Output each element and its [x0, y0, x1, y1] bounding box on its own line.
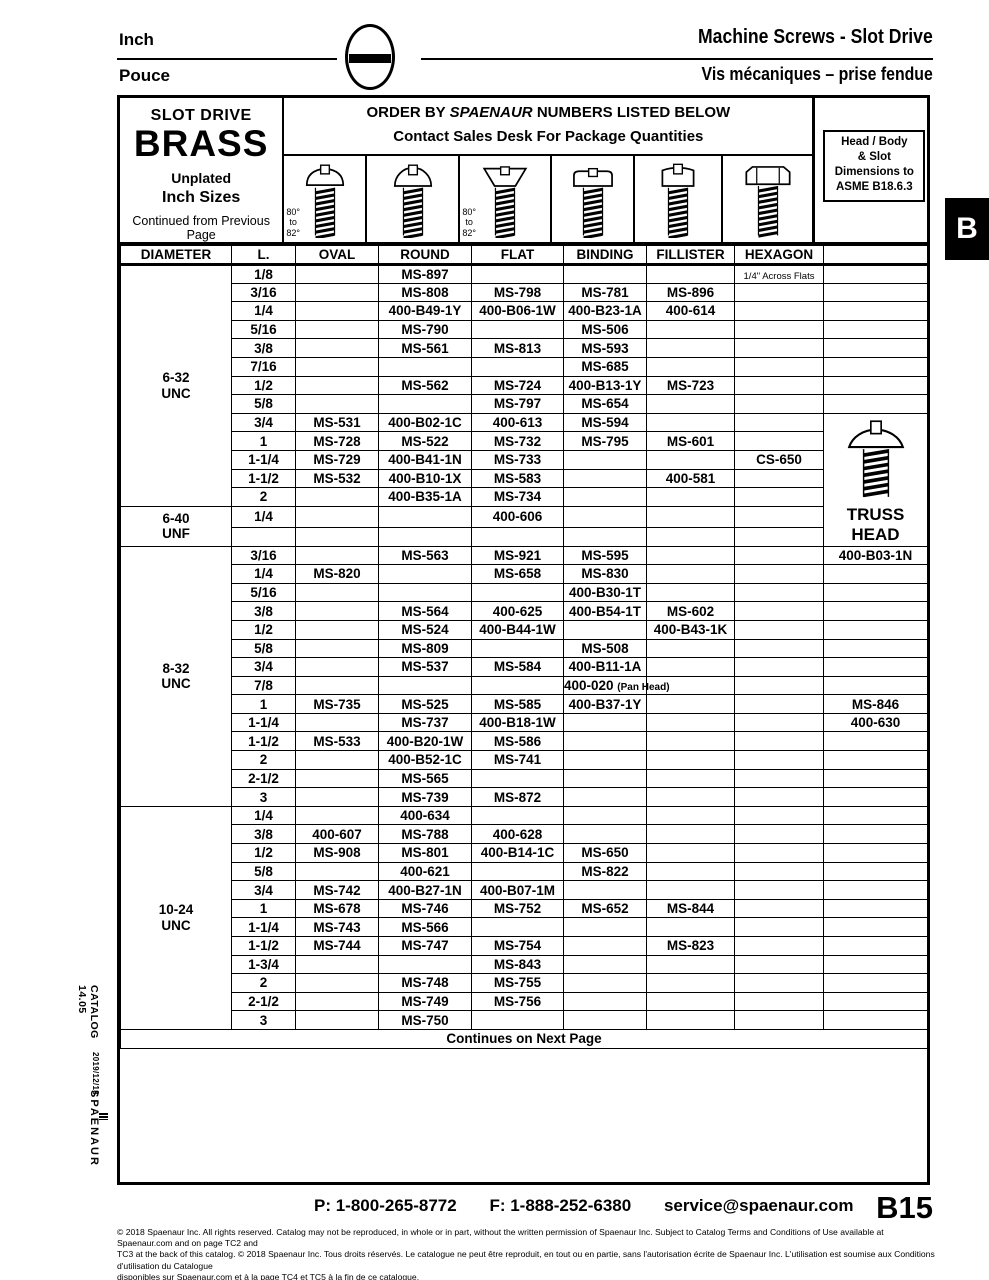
part-number-cell-binding [564, 265, 647, 284]
part-number-cell-round: MS-749 [379, 992, 472, 1011]
part-number-cell-fillister [647, 357, 735, 376]
asme-header-cell: Head / Body & Slot Dimensions to ASME B1… [812, 98, 927, 242]
part-number-cell-fillister: MS-896 [647, 283, 735, 302]
diameter-cell: 6-32UNC [121, 265, 232, 507]
part-number-cell-hexagon [735, 676, 824, 695]
part-number-cell-oval [296, 751, 379, 770]
part-number-cell-hexagon [735, 974, 824, 993]
part-number-cell-flat: MS-658 [472, 565, 564, 584]
page-header: Inch Pouce Machine Screws - Slot Drive V… [117, 22, 933, 94]
part-number-cell-round: MS-808 [379, 283, 472, 302]
part-number-cell-truss [824, 806, 928, 825]
part-number-cell-oval [296, 357, 379, 376]
part-number-cell-truss [824, 676, 928, 695]
part-number-cell-hexagon [735, 546, 824, 565]
part-number-cell-flat [472, 583, 564, 602]
part-number-cell-truss [824, 376, 928, 395]
part-number-cell-fillister [647, 339, 735, 358]
part-number-cell-hexagon [735, 695, 824, 714]
part-number-cell-binding [564, 769, 647, 788]
asme-note: Head / Body & Slot Dimensions to ASME B1… [823, 130, 925, 202]
part-number-cell-flat [472, 265, 564, 284]
part-number-cell-truss: 400-B03-1N [824, 546, 928, 565]
part-number-cell-binding [564, 506, 647, 527]
part-number-cell-oval: MS-735 [296, 695, 379, 714]
part-number-cell-fillister: MS-601 [647, 432, 735, 451]
part-number-cell-round: 400-B52-1C [379, 751, 472, 770]
length-cell: 1-1/4 [232, 450, 296, 469]
table-row: 3/8MS-564400-625400-B54-1TMS-602 [121, 602, 928, 621]
part-number-cell-fillister: MS-723 [647, 376, 735, 395]
part-number-cell-truss [824, 769, 928, 788]
catalog-version-vertical: CATALOG 14.05 2019/12/18 [76, 985, 100, 1095]
part-number-cell-fillister [647, 658, 735, 677]
part-number-cell-flat: MS-741 [472, 751, 564, 770]
part-number-cell-flat: MS-798 [472, 283, 564, 302]
part-number-cell-fillister [647, 751, 735, 770]
part-number-cell-oval: MS-908 [296, 844, 379, 863]
length-cell: 1-1/2 [232, 732, 296, 751]
part-number-cell-oval [296, 376, 379, 395]
part-number-cell-truss [824, 862, 928, 881]
column-header-flat: FLAT [472, 246, 564, 265]
part-number-cell-oval: MS-532 [296, 469, 379, 488]
part-number-cell-oval: MS-820 [296, 565, 379, 584]
table-row: 7/8400-020 (Pan Head) [121, 676, 928, 695]
table-row: 1/2MS-562MS-724400-B13-1YMS-723 [121, 376, 928, 395]
table-row: 2400-B52-1CMS-741 [121, 751, 928, 770]
part-number-cell-truss [824, 602, 928, 621]
length-cell: 3/4 [232, 881, 296, 900]
part-number-cell-binding [564, 450, 647, 469]
part-number-cell-round: MS-790 [379, 320, 472, 339]
table-row: 1-1/2MS-533400-B20-1WMS-586 [121, 732, 928, 751]
part-number-cell-flat: 400-B14-1C [472, 844, 564, 863]
part-number-cell-round: MS-565 [379, 769, 472, 788]
part-number-cell-binding: MS-822 [564, 862, 647, 881]
table-row: 3/8MS-561MS-813MS-593 [121, 339, 928, 358]
oval-head-screw-icon: 80° to 82° [284, 156, 367, 242]
part-number-cell-binding: MS-594 [564, 413, 647, 432]
length-cell: 5/8 [232, 395, 296, 414]
part-number-cell-round: MS-525 [379, 695, 472, 714]
length-cell: 1 [232, 695, 296, 714]
part-number-cell-flat [472, 639, 564, 658]
part-number-cell-fillister: 400-B43-1K [647, 620, 735, 639]
part-number-cell-flat [472, 527, 564, 546]
part-number-cell-flat [472, 320, 564, 339]
table-header-block: SLOT DRIVE BRASS Unplated Inch Sizes Con… [120, 98, 927, 245]
diameter-cell: 8-32UNC [121, 546, 232, 806]
part-number-cell-hexagon [735, 527, 824, 546]
part-number-cell-oval: MS-729 [296, 450, 379, 469]
table-row: 2-1/2MS-749MS-756 [121, 992, 928, 1011]
part-number-cell-truss: MS-846 [824, 695, 928, 714]
part-number-cell-round: MS-748 [379, 974, 472, 993]
part-number-cell-binding [564, 469, 647, 488]
length-cell: 1/8 [232, 265, 296, 284]
part-number-cell-oval [296, 302, 379, 321]
part-number-cell-fillister: MS-823 [647, 937, 735, 956]
table-row: 1/4400-B49-1Y400-B06-1W400-B23-1A400-614 [121, 302, 928, 321]
part-number-cell-binding [564, 806, 647, 825]
part-number-cell-flat: MS-585 [472, 695, 564, 714]
column-header-hexagon: HEXAGON [735, 246, 824, 265]
length-cell: 7/16 [232, 357, 296, 376]
part-number-cell-flat: 400-B06-1W [472, 302, 564, 321]
binding-head-screw-icon [552, 156, 635, 242]
part-number-cell-flat: 400-B18-1W [472, 713, 564, 732]
length-cell: 3/8 [232, 339, 296, 358]
part-number-cell-hexagon [735, 432, 824, 451]
part-number-cell-fillister [647, 918, 735, 937]
length-cell: 1-3/4 [232, 955, 296, 974]
part-number-cell-flat: MS-734 [472, 488, 564, 507]
part-number-cell-flat: 400-B07-1M [472, 881, 564, 900]
part-number-cell-flat: MS-921 [472, 546, 564, 565]
part-number-cell-round: 400-621 [379, 862, 472, 881]
table-row: 1-1/4MS-729400-B41-1NMS-733CS-650 [121, 450, 928, 469]
length-cell: 5/16 [232, 320, 296, 339]
part-number-cell-round: MS-750 [379, 1011, 472, 1030]
part-number-cell-hexagon [735, 320, 824, 339]
round-head-screw-icon [367, 156, 460, 242]
catalog-date: 2019/12/18 [76, 1052, 100, 1095]
part-number-cell-oval: 400-607 [296, 825, 379, 844]
part-number-cell-hexagon [735, 992, 824, 1011]
table-row: 3MS-739MS-872 [121, 788, 928, 807]
part-number-cell-binding: MS-830 [564, 565, 647, 584]
part-number-cell-fillister [647, 639, 735, 658]
part-number-cell-truss [824, 788, 928, 807]
column-header-binding: BINDING [564, 246, 647, 265]
cell-note: (Pan Head) [617, 682, 669, 693]
part-number-cell-flat: 400-625 [472, 602, 564, 621]
part-number-cell-truss: 400-630 [824, 713, 928, 732]
length-cell: 1/4 [232, 806, 296, 825]
table-row: 2MS-748MS-755 [121, 974, 928, 993]
part-number-cell-binding [564, 620, 647, 639]
order-instruction: ORDER BY SPAENAUR NUMBERS LISTED BELOW [284, 104, 812, 121]
part-number-cell-hexagon: CS-650 [735, 450, 824, 469]
part-number-cell-oval [296, 1011, 379, 1030]
part-number-cell-oval [296, 320, 379, 339]
part-number-cell-oval [296, 488, 379, 507]
part-number-cell-binding [564, 974, 647, 993]
part-number-cell-oval [296, 769, 379, 788]
part-number-cell-hexagon: 1/4" Across Flats [735, 265, 824, 284]
part-number-cell-flat: MS-755 [472, 974, 564, 993]
part-number-cell-binding [564, 881, 647, 900]
part-number-cell-truss [824, 283, 928, 302]
part-number-cell-fillister [647, 546, 735, 565]
table-row: 6-32UNC1/8MS-8971/4" Across Flats [121, 265, 928, 284]
length-cell: 3/16 [232, 546, 296, 565]
part-number-cell-binding [564, 732, 647, 751]
part-number-cell-flat: MS-584 [472, 658, 564, 677]
table-row: 1-1/2MS-744MS-747MS-754MS-823 [121, 937, 928, 956]
length-cell: 1/2 [232, 620, 296, 639]
part-number-cell-round: 400-B02-1C [379, 413, 472, 432]
diameter-cell: 10-24UNC [121, 806, 232, 1029]
length-cell: 1-1/2 [232, 937, 296, 956]
part-number-cell-truss [824, 1011, 928, 1030]
head-angle-note: 80° to 82° [286, 207, 300, 238]
part-number-cell-fillister: 400-581 [647, 469, 735, 488]
part-number-cell-truss [824, 751, 928, 770]
part-number-cell-truss [824, 992, 928, 1011]
part-number-cell-round: MS-897 [379, 265, 472, 284]
table-row: 3MS-750 [121, 1011, 928, 1030]
part-number-cell-truss [824, 918, 928, 937]
part-number-cell-truss [824, 565, 928, 584]
part-number-cell-fillister [647, 527, 735, 546]
catalog-table: SLOT DRIVE BRASS Unplated Inch Sizes Con… [117, 95, 930, 1185]
part-number-cell-oval [296, 676, 379, 695]
part-number-cell-oval: MS-678 [296, 899, 379, 918]
part-number-cell-round: MS-746 [379, 899, 472, 918]
table-row: 1-1/4MS-743MS-566 [121, 918, 928, 937]
table-row: 5/8MS-797MS-654 [121, 395, 928, 414]
table-row [121, 527, 928, 546]
table-row: 3/4MS-531400-B02-1C400-613MS-594TRUSSHEA… [121, 413, 928, 432]
part-number-cell-truss [824, 339, 928, 358]
part-number-cell-truss [824, 937, 928, 956]
part-number-cell-round: MS-563 [379, 546, 472, 565]
part-number-cell-binding: MS-593 [564, 339, 647, 358]
part-number-cell-hexagon [735, 565, 824, 584]
table-row: 1-3/4MS-843 [121, 955, 928, 974]
table-row: 6-40UNF1/4400-606 [121, 506, 928, 527]
part-number-cell-flat [472, 769, 564, 788]
fax-number: F: 1-888-252-6380 [489, 1196, 631, 1215]
part-number-cell-flat: MS-733 [472, 450, 564, 469]
part-number-cell-fillister [647, 862, 735, 881]
part-number-cell-fillister [647, 788, 735, 807]
part-number-table: DIAMETERL.OVALROUNDFLATBINDINGFILLISTERH… [120, 245, 928, 1049]
part-number-cell-truss [824, 639, 928, 658]
part-number-cell-fillister [647, 713, 735, 732]
part-number-cell-hexagon [735, 376, 824, 395]
part-number-cell-flat: MS-754 [472, 937, 564, 956]
part-number-cell-oval [296, 639, 379, 658]
finish-label: Unplated [120, 170, 282, 186]
part-number-cell-oval [296, 862, 379, 881]
part-number-cell-round: MS-747 [379, 937, 472, 956]
part-number-cell-fillister [647, 1011, 735, 1030]
part-number-cell-round: MS-566 [379, 918, 472, 937]
part-number-cell-hexagon [735, 658, 824, 677]
part-number-cell-round: MS-562 [379, 376, 472, 395]
part-number-cell-binding: MS-781 [564, 283, 647, 302]
part-number-cell-oval [296, 527, 379, 546]
length-cell: 3/16 [232, 283, 296, 302]
part-number-cell-oval [296, 955, 379, 974]
part-number-cell-truss [824, 881, 928, 900]
part-number-cell-fillister [647, 395, 735, 414]
part-number-cell-hexagon [735, 639, 824, 658]
part-number-cell-hexagon [735, 806, 824, 825]
part-number-cell-binding [564, 488, 647, 507]
part-number-cell-truss [824, 302, 928, 321]
part-number-cell-flat: MS-724 [472, 376, 564, 395]
part-number-cell-flat: MS-756 [472, 992, 564, 1011]
length-cell: 1 [232, 432, 296, 451]
brand-vertical: SPAENAUR [88, 1090, 100, 1185]
part-number-cell-round: MS-739 [379, 788, 472, 807]
length-cell: 1/2 [232, 844, 296, 863]
part-number-cell-hexagon [735, 713, 824, 732]
table-row: 1/4MS-820MS-658MS-830 [121, 565, 928, 584]
length-cell: 2 [232, 974, 296, 993]
part-number-cell-round: MS-524 [379, 620, 472, 639]
length-cell: 3/4 [232, 413, 296, 432]
part-number-cell-round: 400-B27-1N [379, 881, 472, 900]
part-number-cell-hexagon [735, 302, 824, 321]
length-cell: 5/16 [232, 583, 296, 602]
table-row: 1-1/2MS-532400-B10-1XMS-583400-581 [121, 469, 928, 488]
length-cell: 1/2 [232, 376, 296, 395]
part-number-cell-truss [824, 974, 928, 993]
part-number-cell-binding [564, 713, 647, 732]
part-number-cell-fillister [647, 732, 735, 751]
part-number-cell-fillister [647, 806, 735, 825]
part-number-cell-truss [824, 825, 928, 844]
part-number-cell-flat: MS-813 [472, 339, 564, 358]
table-row: 1-1/4MS-737400-B18-1W400-630 [121, 713, 928, 732]
part-number-cell-binding: 400-B30-1T [564, 583, 647, 602]
continues-note: Continues on Next Page [121, 1029, 928, 1048]
part-number-cell-hexagon [735, 469, 824, 488]
part-number-cell-fillister [647, 881, 735, 900]
part-number-cell-round: 400-634 [379, 806, 472, 825]
part-number-cell-hexagon [735, 918, 824, 937]
part-number-cell-hexagon [735, 413, 824, 432]
part-number-cell-oval [296, 713, 379, 732]
part-number-cell-oval [296, 806, 379, 825]
length-cell: 2-1/2 [232, 769, 296, 788]
part-number-cell-fillister [647, 844, 735, 863]
column-header-round: ROUND [379, 246, 472, 265]
part-number-cell-binding [564, 937, 647, 956]
part-number-cell-hexagon [735, 283, 824, 302]
table-row: 2-1/2MS-565 [121, 769, 928, 788]
table-row: 1MS-735MS-525MS-585400-B37-1YMS-846 [121, 695, 928, 714]
part-number-cell-fillister: MS-602 [647, 602, 735, 621]
part-number-cell-fillister [647, 695, 735, 714]
part-number-cell-hexagon [735, 899, 824, 918]
part-number-cell-truss [824, 658, 928, 677]
unit-label-fr: Pouce [119, 66, 170, 86]
material-label: BRASS [120, 125, 282, 162]
part-number-cell-flat: MS-586 [472, 732, 564, 751]
length-cell: 1/4 [232, 506, 296, 527]
part-number-cell-round: MS-809 [379, 639, 472, 658]
length-cell: 7/8 [232, 676, 296, 695]
column-header-row: DIAMETERL.OVALROUNDFLATBINDINGFILLISTERH… [121, 246, 928, 265]
part-number-cell-binding: 400-B13-1Y [564, 376, 647, 395]
part-number-cell-hexagon [735, 769, 824, 788]
part-number-cell-oval [296, 583, 379, 602]
part-number-cell-fillister: MS-844 [647, 899, 735, 918]
spaenaur-logo-icon [99, 1113, 108, 1120]
part-number-cell-flat: MS-583 [472, 469, 564, 488]
email-address: service@spaenaur.com [664, 1196, 854, 1215]
length-cell: 1 [232, 899, 296, 918]
part-number-cell-fillister [647, 265, 735, 284]
part-number-cell-oval: MS-533 [296, 732, 379, 751]
part-number-cell-flat [472, 676, 564, 695]
header-rule-right [421, 58, 933, 60]
part-number-cell-round [379, 676, 472, 695]
table-row: 2400-B35-1AMS-734 [121, 488, 928, 507]
part-number-cell-oval [296, 506, 379, 527]
table-bottom-row: Continues on Next Page [121, 1029, 928, 1048]
part-number-cell-truss [824, 395, 928, 414]
part-number-cell-fillister [647, 413, 735, 432]
part-number-cell-binding: MS-508 [564, 639, 647, 658]
length-cell: 3 [232, 788, 296, 807]
contact-instruction: Contact Sales Desk For Package Quantitie… [284, 128, 812, 145]
part-number-cell-flat: 400-606 [472, 506, 564, 527]
slot-drive-icon [345, 24, 395, 90]
part-number-cell-flat: MS-843 [472, 955, 564, 974]
part-number-cell-round: 400-B20-1W [379, 732, 472, 751]
column-header-diameter: DIAMETER [121, 246, 232, 265]
part-number-cell-oval: MS-742 [296, 881, 379, 900]
part-number-cell-flat: 400-613 [472, 413, 564, 432]
part-number-cell-oval [296, 546, 379, 565]
part-number-cell-hexagon [735, 788, 824, 807]
part-number-cell-binding [564, 751, 647, 770]
part-number-cell-binding: 400-B11-1A [564, 658, 647, 677]
length-cell: 3/8 [232, 602, 296, 621]
table-row: 1MS-678MS-746MS-752MS-652MS-844 [121, 899, 928, 918]
part-number-cell-truss [824, 955, 928, 974]
part-number-cell-binding: MS-506 [564, 320, 647, 339]
part-number-cell-truss [824, 265, 928, 284]
part-number-cell-truss [824, 844, 928, 863]
length-cell: 2 [232, 488, 296, 507]
catalog-version: CATALOG 14.05 [76, 985, 100, 1050]
truss-head-panel: TRUSSHEAD [824, 413, 928, 546]
part-number-cell-hexagon [735, 825, 824, 844]
part-number-cell-fillister: 400-614 [647, 302, 735, 321]
phone-number: P: 1-800-265-8772 [314, 1196, 457, 1215]
legal-text: © 2018 Spaenaur Inc. All rights reserved… [117, 1227, 937, 1280]
part-number-cell-fillister [647, 769, 735, 788]
contact-line: P: 1-800-265-8772 F: 1-888-252-6380 serv… [300, 1196, 860, 1216]
table-row: 1/2MS-524400-B44-1W400-B43-1K [121, 620, 928, 639]
table-row: 3/8400-607MS-788400-628 [121, 825, 928, 844]
part-number-cell-oval [296, 620, 379, 639]
part-number-cell-hexagon [735, 357, 824, 376]
part-number-cell-fillister [647, 450, 735, 469]
table-row: 3/4MS-537MS-584400-B11-1A [121, 658, 928, 677]
part-number-cell-truss [824, 732, 928, 751]
part-number-cell-hexagon [735, 751, 824, 770]
part-number-cell-truss [824, 620, 928, 639]
part-number-cell-truss [824, 357, 928, 376]
part-number-cell-flat [472, 357, 564, 376]
table-row: 5/16MS-790MS-506 [121, 320, 928, 339]
hexagon-head-screw-icon [723, 156, 812, 242]
part-number-cell-hexagon [735, 881, 824, 900]
page-title-fr: Vis mécaniques – prise fendue [670, 64, 933, 85]
part-number-cell-flat: 400-628 [472, 825, 564, 844]
part-number-cell-oval [296, 395, 379, 414]
part-number-cell-round [379, 583, 472, 602]
